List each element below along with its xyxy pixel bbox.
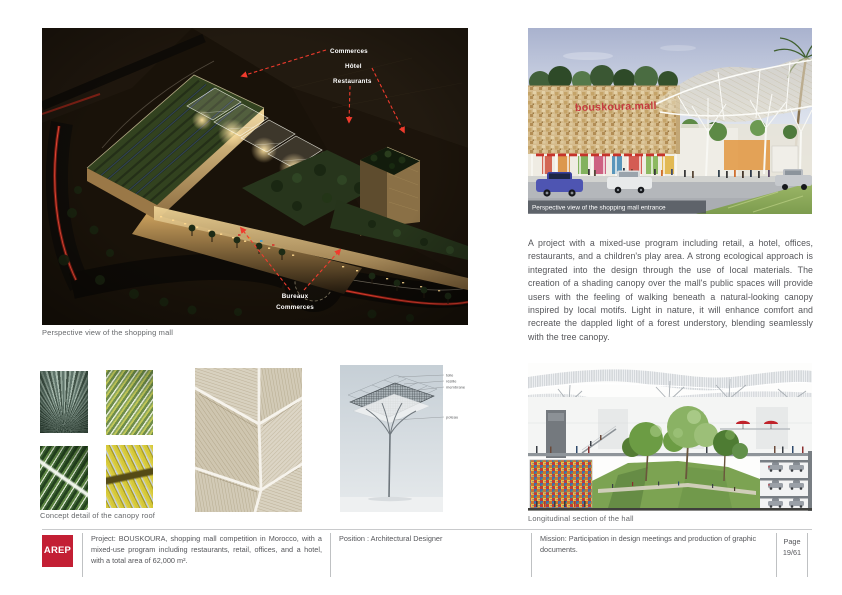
page-indicator: Page 19/61 [776,533,808,577]
diagram-label-2: résille [446,379,457,384]
project-description: A project with a mixed-use program inclu… [528,237,813,344]
entrance-render: bouskoura.mall [528,28,812,214]
palm-photo-frond-green-yellow [106,370,153,435]
concept-caption: Concept detail of the canopy roof [40,511,155,520]
footer-mission-cell: Mission: Participation in design meeting… [531,533,776,577]
entrance-render-svg: bouskoura.mall [528,28,812,214]
page-number: 19/61 [779,548,805,559]
canopy-structure-diagram: toile résille membrane poteau [340,365,470,512]
footer-project-cell: Project: BOUSKOURA, shopping mall compet… [82,533,330,577]
canopy-roof-detail [195,368,302,512]
annotation-label-hotel: Hôtel [345,63,362,70]
longitudinal-section-render [528,363,812,511]
palm-photo-frond-green [40,446,88,510]
canopy-roof-detail-svg [195,368,302,512]
longitudinal-section-svg [528,363,812,511]
page-label: Page [779,537,805,548]
parking-section [760,451,812,511]
entrance-caption-text: Perspective view of the shopping mall en… [532,205,666,212]
annotation-label-restaurants: Restaurants [333,78,372,85]
canopy-structure-diagram-svg: toile résille membrane poteau [340,365,470,512]
diagram-label-4: poteau [446,415,458,420]
diagram-label-1: toile [446,373,454,378]
annotation-label-bureaux: Bureaux [282,293,309,300]
footer-position-cell: Position : Architectural Designer [330,533,531,577]
diagram-label-3: membrane [446,385,466,390]
annotation-label-commerces-top: Commerces [330,48,368,55]
bouskoura-mall-sign: bouskoura.mall [575,100,657,114]
footer: AREP Project: BOUSKOURA, shopping mall c… [42,533,812,577]
main-render-caption: Perspective view of the shopping mall [42,328,173,337]
section-caption: Longitudinal section of the hall [528,514,634,523]
ground-line [528,508,812,511]
footer-rule [42,529,812,530]
night-aerial-render: Commerces Hôtel Restaurants Bureaux Comm… [42,28,468,325]
retail-section-block [530,460,592,508]
portfolio-page: { "colors": { "annotation_red": "#ef3b2d… [0,0,842,595]
night-aerial-render-svg: Commerces Hôtel Restaurants Bureaux Comm… [42,28,468,325]
palm-photo-frond-yellow [106,445,153,508]
arep-logo: AREP [42,535,73,567]
palm-photo-fan [40,371,88,433]
annotation-label-commerces-bottom: Commerces [276,304,314,311]
